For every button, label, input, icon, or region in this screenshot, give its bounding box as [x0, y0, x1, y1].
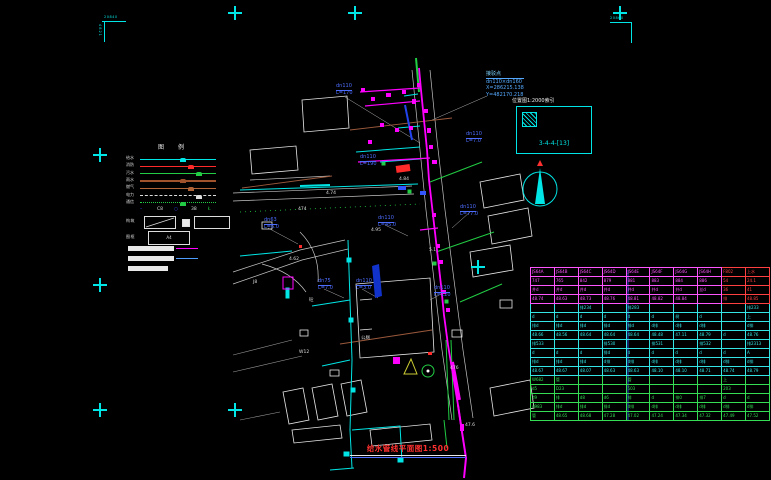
green-utility-lines — [240, 58, 502, 448]
hydrant-symbol — [349, 318, 353, 322]
table-cell: 36 — [722, 286, 746, 295]
table-row: 48.7448.6348.7348.7648.8148.8248.84排48.8… — [531, 295, 770, 304]
legend-row-label: 燃气 — [126, 185, 134, 189]
table-cell: 886 — [698, 277, 722, 286]
table-cell: 883 — [650, 277, 674, 286]
table-cell: 排d — [626, 322, 650, 331]
table-cell: 排d — [578, 358, 602, 367]
table-cell: 井d — [554, 286, 578, 295]
cad-sheet: 20840 4821 20860 图例 给水消防污水雨水燃气电力通信 –C8○3… — [0, 0, 771, 480]
table-cell: d排 — [722, 403, 746, 412]
table-cell: 排531 — [650, 340, 674, 349]
hydrant-symbol — [351, 388, 355, 392]
table-cell — [698, 304, 722, 313]
table-cell: 井d — [602, 286, 626, 295]
table-cell: d — [626, 349, 650, 358]
table-cell: JS64E — [626, 268, 650, 277]
legend-box-solid — [182, 219, 190, 227]
legend-row: 电力 — [126, 193, 238, 199]
table-row: d983排d排d排dd排d排d排d排d排d排 — [531, 403, 770, 412]
pipe-size-label: dn110L=7.0 — [466, 132, 482, 145]
table-cell: d — [626, 313, 650, 322]
hatch-symbol — [522, 112, 537, 127]
table-cell: 842 — [578, 277, 602, 286]
table-cell: d — [698, 349, 722, 358]
table-cell: 排d — [554, 358, 578, 367]
table-cell: d — [722, 394, 746, 403]
registration-cross — [471, 260, 485, 274]
table-cell — [602, 385, 626, 394]
detail-box-code: 3-4-4-[13] — [517, 140, 591, 147]
table-cell: 井d — [674, 286, 698, 295]
table-cell: d排 — [650, 322, 674, 331]
table-cell: 树 — [674, 313, 698, 322]
annotation-label: 4.74 — [326, 192, 336, 197]
connection-note-y: Y=482170.218 — [486, 92, 524, 99]
table-cell: 48.76 — [746, 331, 770, 340]
pipe-size-label: dn110L=190 — [360, 155, 377, 168]
table-cell: JS64B — [554, 268, 578, 277]
table-cell: d — [578, 313, 602, 322]
table-cell: 48.67 — [554, 367, 578, 376]
legend-title: 图例 — [158, 142, 198, 151]
table-cell: 上 — [722, 376, 746, 385]
table-cell — [650, 376, 674, 385]
legend-symbol: 38 — [191, 208, 197, 213]
table-row: 井d井d井d井d井d井d井d丝d3641 — [531, 286, 770, 295]
table-cell: d排 — [650, 403, 674, 412]
annotation-label: W12 — [299, 351, 309, 356]
legend-row-label: 消防 — [126, 163, 134, 167]
legend-row-marker — [180, 179, 186, 183]
pipe-size-label: dn63L=6.0 — [264, 218, 279, 231]
buildings-linework — [250, 96, 534, 446]
table-cell: 54 — [722, 277, 746, 286]
connection-note-x: X=286215.138 — [486, 85, 524, 92]
table-cell: 48.73 — [578, 295, 602, 304]
table-cell: 排d — [578, 322, 602, 331]
corner-coordinate-label: 4821 — [98, 24, 102, 37]
table-cell: 47.11 — [674, 331, 698, 340]
table-cell: d — [602, 313, 626, 322]
table-cell: 排233 — [746, 304, 770, 313]
grey-linework — [233, 340, 302, 420]
table-cell — [698, 295, 722, 304]
legend-box-hatched — [144, 216, 176, 229]
table-cell: d排 — [626, 358, 650, 367]
pipe-data-table: JS64AJS64BJS64CJS64DJS64EJS64FJS64GJS64H… — [530, 267, 770, 421]
table-cell: 48.68 — [578, 412, 602, 421]
table-cell: 48.81 — [626, 295, 650, 304]
table-row: dddddd树d上 — [531, 313, 770, 322]
table-cell — [554, 340, 578, 349]
legend-row-line — [140, 188, 216, 189]
table-cell: JS64F — [650, 268, 674, 277]
legend-row: 燃气 — [126, 185, 238, 191]
table-cell — [722, 313, 746, 322]
table-cell: D23 — [554, 385, 578, 394]
table-cell: d — [554, 313, 578, 322]
table-cell: 井d — [578, 286, 602, 295]
registration-cross — [613, 6, 627, 20]
table-row: 排234排283排233 — [531, 304, 770, 313]
table-cell: 765 — [554, 277, 578, 286]
table-cell: 排 — [722, 295, 746, 304]
registration-cross — [228, 6, 242, 20]
table-cell: d排 — [674, 322, 698, 331]
hydrant-symbol — [347, 258, 351, 262]
table-cell: 上 — [746, 313, 770, 322]
caption-underline-2 — [350, 457, 466, 458]
table-cell: 排 — [626, 394, 650, 403]
table-cell: 48.82 — [650, 295, 674, 304]
annotation-label: 47.6 — [465, 424, 475, 429]
table-cell: 48.63 — [554, 295, 578, 304]
table-cell: 47.52 — [746, 412, 770, 421]
table-cell: JS64H — [698, 268, 722, 277]
table-cell: 管 — [531, 412, 555, 421]
legend-row-line — [140, 195, 216, 197]
legend-box-row-label: 构筑 — [126, 218, 135, 224]
table-cell: d排 — [722, 358, 746, 367]
annotation-label: 4.62 — [289, 258, 299, 263]
table-row: 7477658428798818838848865424.1 — [531, 277, 770, 286]
registration-cross — [93, 148, 107, 162]
table-cell — [626, 340, 650, 349]
connection-note: 接驳点 dn110×dn160 X=286215.138 Y=482170.21… — [486, 71, 524, 98]
table-cell: 排533 — [531, 340, 555, 349]
table-cell: d — [531, 349, 555, 358]
table-cell: 排d — [531, 358, 555, 367]
table-cell: 排d — [531, 322, 555, 331]
table-cell — [602, 304, 626, 313]
connection-note-title: 接驳点 — [486, 71, 524, 79]
table-cell: 排d — [554, 322, 578, 331]
table-cell: 48.10 — [674, 367, 698, 376]
table-cell: 747 — [531, 277, 555, 286]
legend-row-label: 电力 — [126, 193, 134, 197]
table-cell: A — [746, 349, 770, 358]
legend-row-line — [140, 180, 216, 181]
table-cell: 排d — [602, 322, 626, 331]
table-cell: 24.1 — [746, 277, 770, 286]
legend-row-line — [140, 159, 216, 160]
table-cell: d — [650, 394, 674, 403]
table-cell: 丝d — [698, 286, 722, 295]
table-cell: 48.63 — [602, 367, 626, 376]
scale-bar — [128, 256, 174, 261]
table-cell: 47.32 — [698, 412, 722, 421]
annotation-label: 476 — [450, 367, 459, 372]
table-cell: d983 — [531, 403, 555, 412]
detail-box-title: 位置图1:2000索引 — [512, 97, 555, 104]
pipe-size-label: dn110L=45.0 — [378, 216, 396, 229]
table-cell: 47.49 — [722, 412, 746, 421]
tree-center-dot — [427, 370, 430, 373]
table-cell — [650, 385, 674, 394]
table-cell: d — [531, 313, 555, 322]
table-cell: 48.76 — [602, 295, 626, 304]
drawing-caption: 给水管线平面图1:500 — [350, 443, 466, 454]
table-cell: d排 — [674, 358, 698, 367]
table-cell: 48.79 — [746, 367, 770, 376]
table-cell: d — [650, 313, 674, 322]
table-cell: d排 — [626, 403, 650, 412]
table-cell — [698, 376, 722, 385]
table-cell: 48.64 — [578, 331, 602, 340]
annotation-label: 4.84 — [399, 178, 409, 183]
table-cell: W682 — [531, 376, 555, 385]
table-cell: 47.02 — [626, 412, 650, 421]
table-cell: 879 — [602, 277, 626, 286]
legend: 图例 给水消防污水雨水燃气电力通信 –C8○38Ł 构筑 图框 A4 — [126, 142, 238, 278]
table-cell: 48.56 — [554, 331, 578, 340]
table-cell: 48.65 — [554, 412, 578, 421]
table-cell — [722, 340, 746, 349]
table-row: d9排d8d6排d排0排7dd — [531, 394, 770, 403]
legend-row-line — [140, 173, 216, 174]
table-cell: 排283 — [626, 304, 650, 313]
table-cell: 排234 — [578, 304, 602, 313]
legend-frame-row-label: 图框 — [126, 234, 135, 240]
table-cell: d排 — [698, 403, 722, 412]
table-cell: d排 — [746, 322, 770, 331]
table-cell: 881 — [626, 277, 650, 286]
table-cell: d — [722, 349, 746, 358]
registration-cross — [93, 403, 107, 417]
table-cell: 排532 — [698, 340, 722, 349]
pipe-size-label: dn75L=7.0 — [318, 279, 333, 292]
table-cell — [602, 376, 626, 385]
annotation-label: 公厕 — [361, 337, 370, 342]
table-row: ddd排ddddddA — [531, 349, 770, 358]
table-cell: JS64G — [674, 268, 698, 277]
table-cell: JS64D — [602, 268, 626, 277]
legend-row-label: 通信 — [126, 200, 134, 204]
pipe-size-label: dn110L=77.0 — [460, 205, 478, 218]
annotation-label: 4.95 — [371, 229, 381, 234]
table-cell: 48.71 — [698, 367, 722, 376]
legend-row-marker — [188, 187, 194, 191]
legend-row: 消防 — [126, 163, 238, 169]
detail-index-box: 3-4-4-[13] — [516, 106, 592, 154]
table-cell — [722, 322, 746, 331]
table-cell: d排 — [698, 358, 722, 367]
table-cell — [531, 304, 555, 313]
table-cell: 47.28 — [602, 412, 626, 421]
table-cell — [698, 385, 722, 394]
table-cell: d — [650, 349, 674, 358]
table-cell — [746, 376, 770, 385]
table-cell: d — [674, 349, 698, 358]
table-cell: 48.74 — [531, 295, 555, 304]
table-cell — [578, 376, 602, 385]
table-cell: d8 — [578, 394, 602, 403]
table-cell — [578, 385, 602, 394]
legend-row-marker — [196, 195, 202, 199]
yellow-triangle-structure — [404, 359, 417, 374]
table-cell — [674, 304, 698, 313]
table-cell: 48.07 — [578, 367, 602, 376]
table-cell: 排7 — [698, 394, 722, 403]
title-block: 给水管线平面图1:500 — [350, 443, 466, 458]
scale-bar — [128, 266, 168, 271]
legend-frame-box-text: A4 — [149, 235, 189, 240]
table-cell: d — [722, 331, 746, 340]
table-cell: 48.64 — [626, 331, 650, 340]
table-cell: 上水 — [746, 268, 770, 277]
registration-cross — [93, 278, 107, 292]
legend-row-label: 雨水 — [126, 178, 134, 182]
legend-box-empty — [194, 216, 230, 229]
legend-row-marker — [180, 158, 186, 162]
legend-row-line — [140, 166, 216, 167]
table-cell — [746, 385, 770, 394]
table-cell: d6 — [602, 394, 626, 403]
table-cell: 管 — [626, 376, 650, 385]
scale-bar — [128, 246, 174, 251]
legend-row-marker — [188, 165, 194, 169]
table-cell: 排0 — [674, 394, 698, 403]
table-row: d5D23503203 — [531, 385, 770, 394]
table-cell: 203 — [722, 385, 746, 394]
table-cell: 48.85 — [746, 295, 770, 304]
table-row: 48.6648.5648.6448.6448.6448.4847.1148.79… — [531, 331, 770, 340]
pipe-size-label: dn110L=170 — [336, 84, 353, 97]
table-cell: 排d — [578, 403, 602, 412]
table-row: 48.6748.6748.0748.6348.6348.1048.1048.71… — [531, 367, 770, 376]
corner-coordinate-label: 20840 — [104, 15, 118, 19]
table-cell: 48.66 — [531, 331, 555, 340]
table-cell: 48.48 — [650, 331, 674, 340]
legend-row-line — [140, 202, 216, 204]
pipeline-fittings-magenta — [361, 83, 464, 431]
pipe-size-label: dn110L=3.0 — [356, 279, 372, 292]
table-cell: d排 — [674, 403, 698, 412]
table-cell: 503 — [626, 385, 650, 394]
table-cell: d排 — [746, 403, 770, 412]
legend-symbol: – — [140, 208, 142, 213]
table-cell: 排2313 — [746, 340, 770, 349]
table-row: 管48.6548.6847.2847.0247.2447.3447.3247.4… — [531, 412, 770, 421]
table-row: 排533排530排531排532排2313 — [531, 340, 770, 349]
table-cell — [674, 385, 698, 394]
table-cell: d排 — [746, 358, 770, 367]
table-cell: d — [746, 394, 770, 403]
table-cell: 井d — [531, 286, 555, 295]
table-cell: JS64A — [531, 268, 555, 277]
table-cell: d — [578, 349, 602, 358]
table-cell: d — [554, 349, 578, 358]
table-cell — [674, 340, 698, 349]
legend-row-marker — [180, 202, 186, 206]
red-elements — [299, 164, 432, 355]
table-row: JS64AJS64BJS64CJS64DJS64EJS64FJS64GJS64H… — [531, 268, 770, 277]
table-cell: d — [698, 313, 722, 322]
legend-frame-box: A4 — [148, 231, 190, 245]
table-cell: 排530 — [602, 340, 626, 349]
legend-row-marker — [196, 172, 202, 176]
legend-symbol: Ł — [208, 208, 211, 213]
table-cell: 47.34 — [674, 412, 698, 421]
table-cell: 884 — [674, 277, 698, 286]
table-cell — [578, 340, 602, 349]
table-cell: 41 — [746, 286, 770, 295]
annotation-label: 5.1 — [429, 249, 436, 254]
legend-row: 雨水 — [126, 178, 238, 184]
annotation-label: J8 — [253, 281, 257, 286]
table-cell: 48.63 — [626, 367, 650, 376]
table-row: 排d排d排d排d排dd排d排d排d排 — [531, 322, 770, 331]
table-cell: 47.24 — [650, 412, 674, 421]
table-cell: 48.84 — [674, 295, 698, 304]
legend-symbol: C8 — [157, 208, 163, 213]
pipe-size-label: dn110L=120 — [434, 286, 451, 299]
table-cell: 井d — [626, 286, 650, 295]
annotation-label: 砼 — [309, 299, 314, 304]
table-cell: 48.74 — [722, 367, 746, 376]
legend-row-label: 污水 — [126, 171, 134, 175]
table-cell — [554, 304, 578, 313]
annotation-label: 474 — [298, 208, 307, 213]
table-cell: JS64C — [578, 268, 602, 277]
registration-cross — [228, 403, 242, 417]
legend-row-label: 给水 — [126, 156, 134, 160]
registration-cross — [348, 6, 362, 20]
table-cell: d排 — [650, 358, 674, 367]
table-cell: d9 — [531, 394, 555, 403]
legend-row: 污水 — [126, 171, 238, 177]
table-cell — [650, 304, 674, 313]
table-cell: d5 — [531, 385, 555, 394]
table-cell: 48.64 — [602, 331, 626, 340]
legend-blue-line — [176, 258, 198, 259]
table-cell: 管 — [554, 376, 578, 385]
table-cell: d排 — [698, 322, 722, 331]
north-arrow — [523, 160, 557, 206]
legend-row: 给水 — [126, 156, 238, 162]
legend-magenta-line — [176, 248, 198, 249]
table-cell: F802 — [722, 268, 746, 277]
table-cell: 排d — [554, 403, 578, 412]
blue-elements — [372, 186, 426, 298]
table-cell: 48.67 — [531, 367, 555, 376]
table-cell: 48.79 — [698, 331, 722, 340]
table-cell: 排d — [602, 403, 626, 412]
table-cell: 排 — [554, 394, 578, 403]
table-cell: 排d — [602, 349, 626, 358]
table-cell — [674, 376, 698, 385]
table-cell — [722, 304, 746, 313]
table-row: W682管管上 — [531, 376, 770, 385]
legend-row: 通信 — [126, 200, 238, 206]
table-cell: 井d — [650, 286, 674, 295]
table-cell: d排 — [602, 358, 626, 367]
table-row: 排d排d排dd排d排d排d排d排d排d排 — [531, 358, 770, 367]
legend-symbol: ○ — [174, 208, 178, 213]
table-cell: 48.10 — [650, 367, 674, 376]
